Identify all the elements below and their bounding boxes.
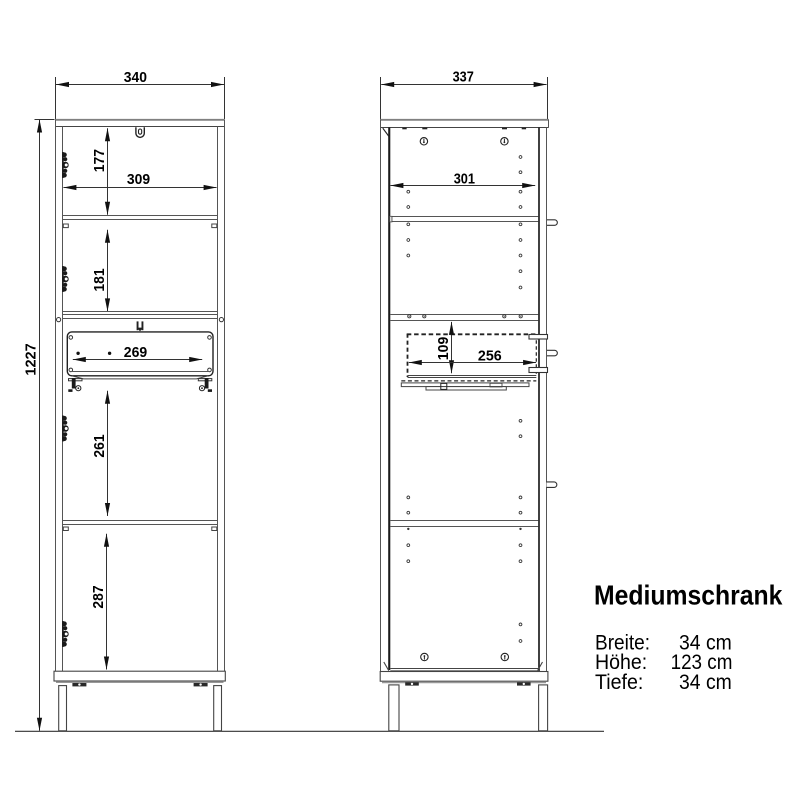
svg-text:Mediumschrank: Mediumschrank xyxy=(594,578,783,610)
svg-text:109: 109 xyxy=(436,337,452,361)
svg-text:261: 261 xyxy=(92,434,108,457)
svg-text:309: 309 xyxy=(127,172,150,188)
svg-text:1227: 1227 xyxy=(23,343,39,375)
svg-text:Tiefe:: Tiefe: xyxy=(595,671,643,694)
svg-text:181: 181 xyxy=(92,268,108,291)
svg-text:301: 301 xyxy=(454,172,475,188)
svg-text:337: 337 xyxy=(453,69,474,85)
svg-text:269: 269 xyxy=(124,345,147,361)
svg-text:34 cm: 34 cm xyxy=(679,671,732,694)
svg-text:340: 340 xyxy=(124,70,147,86)
svg-text:287: 287 xyxy=(91,585,107,608)
svg-text:177: 177 xyxy=(92,149,108,172)
